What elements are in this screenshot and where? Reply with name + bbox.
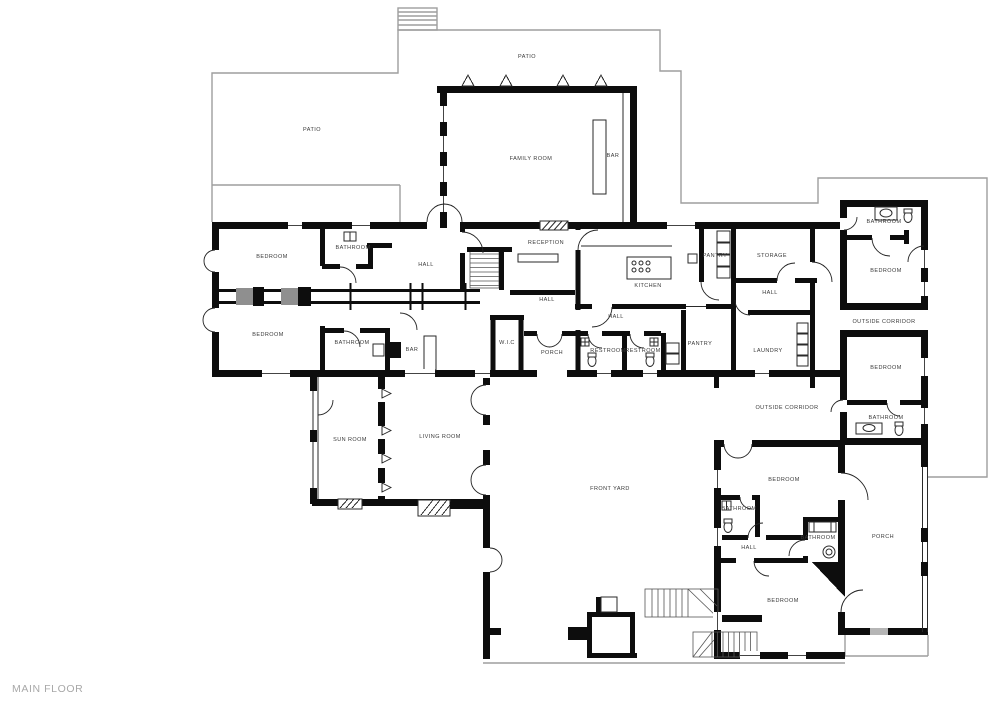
floor-plan-drawing <box>0 0 992 712</box>
patio-steps-icon <box>398 8 437 30</box>
shelving-icon <box>666 231 808 366</box>
entry-structures <box>568 597 762 658</box>
garden-stair-upper-icon <box>645 589 718 617</box>
bar-nook-counter <box>424 336 436 370</box>
floor-plan-page: PATIOPATIOFAMILY ROOMBARRECEPTIONBEDROOM… <box>0 0 992 712</box>
staircase-icon <box>467 248 512 290</box>
left-wing-walls <box>310 377 487 516</box>
hatched-wall-segment <box>540 221 568 230</box>
family-room-walls <box>437 75 637 228</box>
sideboard-icon <box>518 254 558 262</box>
wall-oven-icon <box>688 254 697 263</box>
kitchen-island-icon <box>627 257 671 279</box>
angled-wall <box>812 562 845 597</box>
door-swings <box>203 204 924 612</box>
bar-counter <box>593 120 606 194</box>
floor-title: MAIN FLOOR <box>12 683 83 695</box>
